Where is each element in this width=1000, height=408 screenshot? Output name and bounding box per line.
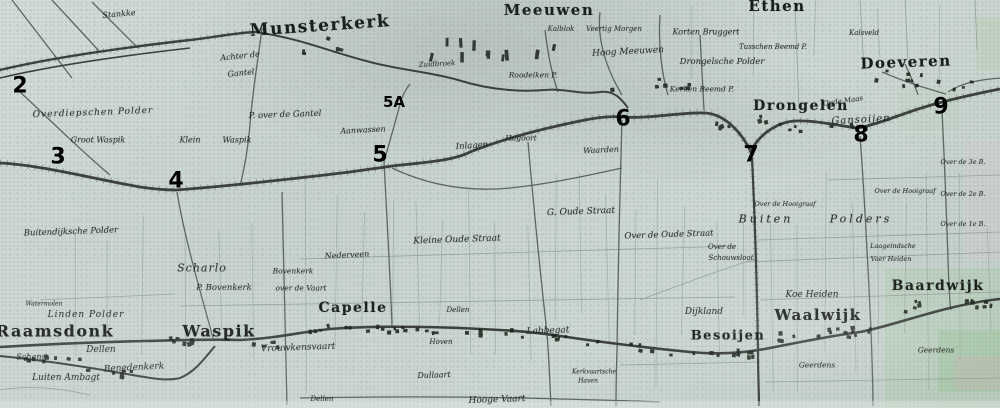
- map-annotation-number: 3: [50, 145, 65, 170]
- map-annotation-number: 8: [853, 123, 868, 148]
- map-annotation-number: 9: [933, 95, 948, 120]
- map-annotation-number: 4: [168, 169, 183, 194]
- historical-map-scan: MunsterkerkMeeuwenEthenDoeverenDrongelen…: [0, 0, 1000, 408]
- map-annotations-layer: 23455A6789: [0, 0, 1000, 408]
- map-annotation-number: 5A: [383, 93, 405, 111]
- map-annotation-number: 6: [615, 107, 630, 132]
- map-annotation-number: 5: [372, 143, 387, 168]
- map-annotation-number: 2: [12, 74, 27, 99]
- map-annotation-number: 7: [743, 143, 758, 168]
